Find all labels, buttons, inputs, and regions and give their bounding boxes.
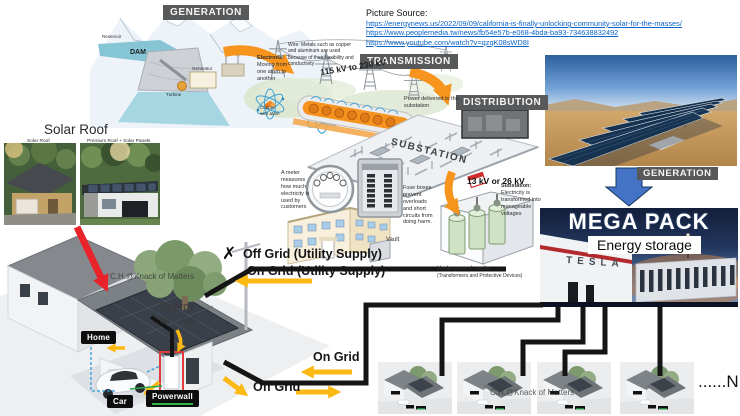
source-link-1[interactable]: https://energynews.us/2022/09/09/califor… — [366, 19, 682, 28]
power-delivered-note: Power delivered to the substation — [404, 96, 466, 110]
car-chip: Car — [107, 395, 133, 408]
infographic-canvas: Reservoir DAM Generator Turbine — [0, 0, 740, 416]
meter-note: A meter measures how much electricity is… — [281, 170, 311, 211]
x-mark: ✗ — [222, 244, 236, 264]
powerwall-chip: Powerwall — [146, 390, 199, 407]
megapack-title: MEGA PACK — [540, 209, 738, 235]
n-more-label: ......N — [698, 372, 739, 392]
underground-caption-sub: (Transformers and Protective Devices) — [437, 273, 522, 279]
dam-generator-label: Generator — [192, 66, 212, 72]
on-grid-label: On Grid — [313, 350, 360, 364]
home-chip: Home — [81, 331, 116, 344]
solar-roof-right-caption: Premium Roof + Solar Panels — [87, 139, 150, 145]
off-grid-utility-label: Off Grid (Utility Supply) — [243, 247, 382, 261]
neighbour-house-1 — [378, 362, 452, 414]
megapack-subtitle: Energy storage — [588, 236, 701, 254]
substation-note-body: Electricity is transformed into manageab… — [501, 190, 541, 217]
powerwall-charge-bar — [152, 403, 193, 406]
powerwall-chip-label: Powerwall — [152, 392, 193, 401]
fuse-box-illustration — [357, 158, 403, 218]
copper-atom-label: Copper wire atom — [260, 105, 280, 116]
electrons-note-title: Electrons: — [257, 55, 284, 61]
dam-reservoir-label: Reservoir — [102, 34, 121, 40]
source-link-2[interactable]: https://www.peoplemedia.tw/news/fb54e57b… — [366, 28, 682, 37]
neighbour-house-4 — [620, 362, 694, 414]
dam-label: DAM — [130, 49, 146, 56]
meter-illustration — [304, 163, 356, 215]
substation-note: Substation: Electricity is transformed i… — [501, 183, 541, 217]
dam-turbine-label: Turbine — [166, 92, 181, 98]
solar-roof-left-caption: Solar Roof — [27, 139, 50, 145]
source-link-3[interactable]: https://www.youtube.com/watch?v=qzqK08sW… — [366, 38, 682, 47]
energy-storage-label: Energy storage — [160, 301, 210, 326]
voltage-13-26: 13 kV or 26 kV — [467, 176, 525, 186]
off-grid-label: Off Grid — [253, 380, 300, 394]
vault-label: Vault — [386, 237, 399, 245]
fuse-note: Fuse boxes prevent overloads and short c… — [403, 185, 437, 226]
on-grid-utility-label: On Grid (Utility Supply) — [247, 264, 385, 278]
home-watermark: C.H.@Knack of Matters — [110, 272, 194, 281]
stage-generation-left: GENERATION — [163, 5, 249, 20]
stage-distribution: DISTRIBUTION — [456, 95, 548, 110]
solar-farm-photo — [545, 55, 737, 166]
picture-source-title: Picture Source: — [366, 8, 682, 18]
picture-source-block: Picture Source: https://energynews.us/20… — [366, 8, 682, 47]
solar-roof-photo-left — [4, 143, 76, 225]
solar-roof-heading: Solar Roof — [44, 122, 108, 137]
row-watermark: C.H.@Knack of Matters — [490, 388, 574, 397]
stage-generation-right: GENERATION — [637, 167, 718, 180]
solar-roof-photo-right — [80, 143, 160, 225]
electrons-note: Electrons: Moving from one atom to anoth… — [257, 55, 289, 83]
electrons-note-body: Moving from one atom to another — [257, 62, 287, 82]
